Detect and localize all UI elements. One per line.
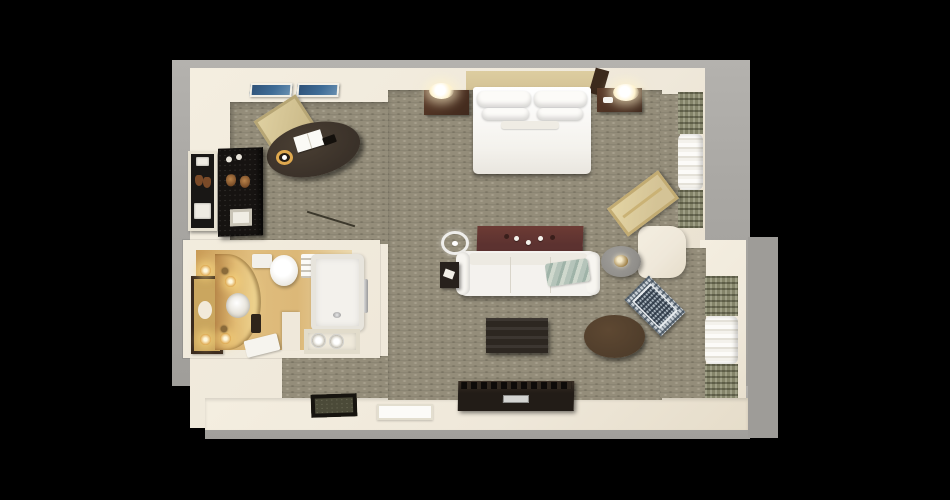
towel-cubby — [304, 329, 360, 354]
paper — [443, 269, 455, 280]
duvet-fold — [501, 121, 559, 129]
end-table — [440, 262, 459, 288]
sofa — [458, 251, 598, 296]
drapes-icon — [678, 190, 703, 228]
console-table — [477, 226, 584, 253]
drapes-icon — [705, 364, 738, 398]
ice-bucket-tray — [230, 209, 252, 227]
drapes-icon — [678, 92, 703, 134]
throw-blanket — [545, 258, 591, 287]
entry-door — [377, 404, 433, 420]
drawer-handle — [503, 395, 529, 403]
glassware — [240, 176, 250, 188]
cup — [276, 150, 293, 165]
wall-pillar — [638, 226, 686, 278]
drapes-icon — [705, 276, 738, 316]
floorplan-canvas — [0, 0, 950, 500]
towel-bar — [364, 279, 368, 313]
pillow — [477, 91, 531, 107]
bedside-lamp-icon — [429, 83, 454, 99]
accent-chair — [620, 280, 690, 332]
pillow — [534, 91, 587, 107]
bedside-lamp-icon — [613, 84, 639, 101]
bedroom-window-bay — [678, 92, 703, 228]
shelf-item — [194, 203, 211, 219]
closet-shelving — [188, 151, 217, 231]
table-lamp-icon — [614, 255, 628, 267]
telephone — [603, 97, 613, 103]
decor-item — [514, 236, 519, 241]
doormat — [311, 393, 358, 418]
glassware — [226, 174, 236, 186]
minibar-cabinet — [218, 147, 263, 237]
bench-cushion-seam — [622, 187, 662, 218]
accent-chair-cushion — [635, 286, 676, 327]
sheer-curtain-icon — [705, 316, 738, 364]
decor-item — [526, 240, 531, 245]
shelf-item — [195, 175, 203, 186]
cup — [236, 154, 242, 160]
bathroom — [183, 240, 380, 358]
side-table — [601, 246, 641, 277]
tv-console — [458, 381, 575, 411]
shelf-item — [196, 157, 209, 166]
pillow — [537, 108, 583, 120]
toiletry-item — [222, 268, 228, 274]
sheer-curtain-icon — [678, 134, 703, 190]
decor-item — [550, 235, 555, 240]
towel-roll — [311, 333, 326, 348]
doormat-pattern — [315, 397, 354, 413]
pillow — [482, 108, 529, 120]
toilet — [270, 255, 298, 286]
towel-roll — [329, 334, 344, 349]
coffee-table — [486, 318, 548, 353]
king-bed — [473, 87, 591, 174]
decor-item — [504, 234, 509, 239]
wall-artwork — [297, 83, 340, 97]
sink — [226, 293, 250, 318]
mirror-reflection — [198, 301, 212, 319]
accent-chair-frame — [624, 275, 685, 336]
waste-bin — [251, 314, 261, 333]
cup — [226, 156, 232, 162]
bath-wall-stub — [282, 312, 300, 350]
vanity-light-icon — [225, 276, 236, 287]
bathtub — [311, 254, 364, 331]
tub-faucet — [333, 312, 341, 318]
wall-artwork — [250, 83, 293, 97]
vanity-light-icon — [200, 334, 211, 345]
decor-item — [538, 236, 543, 241]
shelf-item — [203, 177, 211, 188]
toiletry-item — [221, 326, 227, 332]
vanity-light-icon — [200, 265, 211, 276]
carpet-below-bathroom — [282, 356, 388, 398]
console-slats — [461, 382, 571, 389]
toilet-tank — [252, 254, 272, 268]
vanity-light-icon — [220, 333, 231, 344]
slab-right-bump — [748, 237, 778, 438]
cushion-seam — [510, 257, 511, 293]
ceiling-light-center — [452, 241, 458, 246]
living-window-bay — [705, 276, 738, 398]
